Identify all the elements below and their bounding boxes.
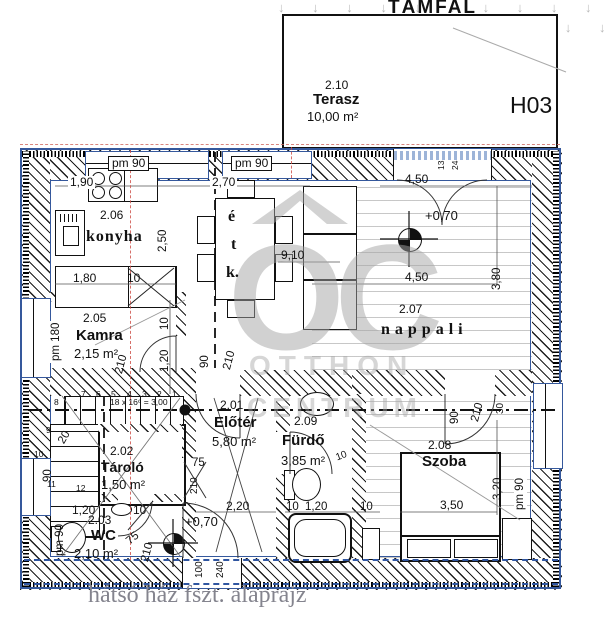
dim-label: 1,80 (73, 272, 96, 285)
dim-label: 2,50 (157, 230, 170, 252)
room-code-kitchen: 2.06 (100, 209, 123, 222)
room-code-bedroom: 2.08 (428, 439, 451, 452)
terrace-area: 10,00 m² (307, 110, 358, 123)
dining-letter: é (228, 210, 235, 223)
dim-label: 10 (286, 501, 299, 514)
stair-step-number: 5 (111, 390, 116, 399)
door-size-label: 75 (192, 457, 205, 470)
stair-step-number: 10 (34, 450, 43, 459)
dim-label: 4,50 (405, 271, 428, 284)
door-size-label: 30 (494, 403, 507, 414)
dim-label: 10 (159, 317, 172, 330)
stair-step-number: 7 (81, 390, 86, 399)
level-label: +0,70 (185, 515, 218, 528)
sill-label: pm 90 (54, 524, 67, 556)
terrace-name: Terasz (313, 93, 359, 106)
floor-plan-canvas: ↓ ↓ ↓ ↓ ↓ ↓ ↓ ↓ ↓ ↓↓ ↓ ↓ ↓ ↓ ↓ ↓ ↓ ↓ ↓ T… (0, 0, 614, 620)
stair-step-number: 12 (76, 484, 85, 493)
level-label: +0,70 (425, 209, 458, 222)
room-code-wc: 2.03 (88, 514, 111, 527)
stair-step-number: 9 (46, 426, 51, 435)
dim-label: 10 (127, 272, 140, 285)
unit-number: H03 (510, 99, 552, 112)
dim-label: 1,20 (305, 501, 327, 514)
dim-label: 100 (193, 561, 206, 578)
room-area-bath: 3,85 m² (281, 454, 325, 467)
room-code-storage: 2.02 (110, 445, 133, 458)
room-code-living: 2.07 (399, 303, 422, 316)
room-area-hall: 5,80 m² (212, 435, 256, 448)
room-name-wc: WC (91, 529, 116, 542)
dim-label: 1,90 (68, 176, 95, 189)
room-name-hall: Előtér (214, 416, 257, 429)
dim-label: 9,10 (281, 249, 304, 262)
axis-line-red-vertical (130, 150, 131, 560)
sill-label: pm 90 (231, 156, 272, 171)
tamfal-title: TÁMFAL (388, 1, 477, 14)
dim-label: 2,20 (226, 500, 249, 513)
sill-label: pm 90 (108, 156, 149, 171)
dim-label: 3,50 (440, 499, 463, 512)
room-code-hall: 2.01 (220, 399, 243, 412)
room-name-kitchen: konyha (86, 230, 143, 243)
door-size-label: 90 (449, 411, 462, 424)
axis-line-red-horizontal (20, 144, 560, 145)
dim-label: 3,80 (491, 268, 504, 290)
stair-step-number: 3 (142, 390, 147, 399)
stair-step-number: 2 (157, 390, 162, 399)
room-code-bath: 2.09 (294, 415, 317, 428)
dim-label: 24 (451, 161, 460, 170)
dim-label: 4,50 (405, 173, 428, 186)
stair-step-number: 4 (127, 390, 132, 399)
dim-label: 90 (42, 469, 55, 482)
dining-letter: t (231, 238, 236, 251)
room-name-pantry: Kamra (76, 329, 123, 342)
room-area-wc: 2,10 m² (74, 547, 118, 560)
dim-label: 240 (214, 561, 227, 578)
door-size-label: 210 (188, 477, 201, 494)
stair-formula: 18 x 16⁶ = 3,00 (110, 398, 168, 407)
dim-label: 13 (437, 161, 446, 170)
dim-label: 10 (360, 501, 373, 514)
stair-step-number: 6 (96, 390, 101, 399)
room-name-bath: Fürdő (282, 434, 325, 447)
room-area-storage: 1,50 m² (101, 478, 145, 491)
dining-letter: k. (226, 266, 239, 279)
plan-caption: hátsó ház fszt. alaprajz (88, 589, 307, 602)
room-name-living: nappali (381, 323, 468, 336)
door-size-label: 90 (199, 355, 212, 368)
stair-step-number: 1 (172, 390, 177, 399)
room-area-pantry: 2,15 m² (74, 347, 118, 360)
room-name-storage: Tároló (101, 461, 144, 474)
dim-label: 3,20 (492, 478, 505, 500)
dim-label: 2,70 (210, 176, 237, 189)
dim-label: 10 (133, 504, 146, 517)
room-name-bedroom: Szoba (422, 455, 466, 468)
sill-label: pm 90 (514, 476, 527, 512)
stair-step-number: 8 (54, 398, 59, 407)
axis-line-red-short (291, 147, 292, 178)
room-code-pantry: 2.05 (83, 312, 106, 325)
dim-label: 1,20 (159, 350, 172, 372)
sill-label: pm 180 (50, 321, 63, 363)
